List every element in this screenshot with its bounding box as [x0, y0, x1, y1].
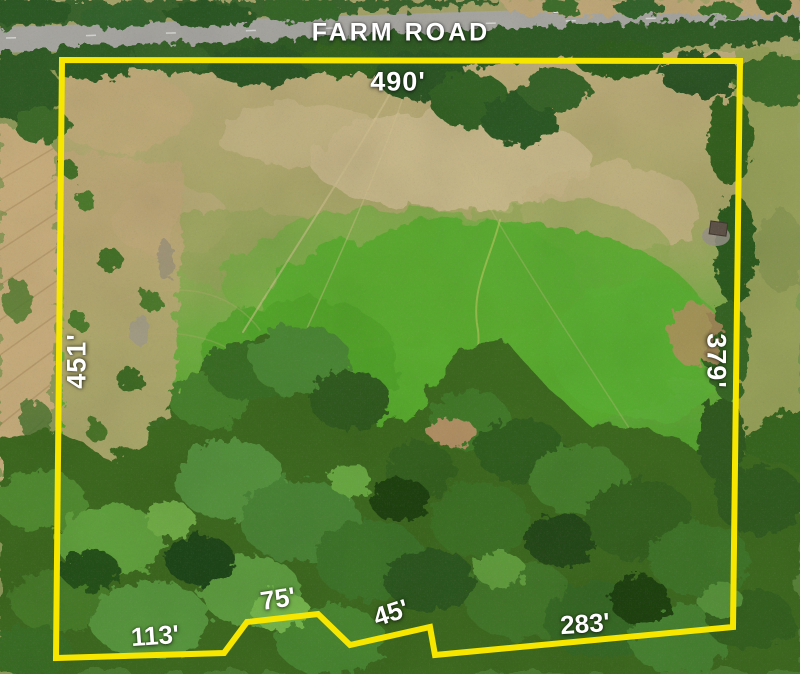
road-name-label: FARM ROAD — [312, 19, 490, 48]
property-aerial-view: FARM ROAD 490' 451' 379' 113' 75' 45' 28… — [0, 0, 800, 674]
dimension-label-south-west: 113' — [130, 619, 180, 653]
dimension-label-east: 379' — [701, 333, 732, 388]
dimension-label-north: 490' — [370, 67, 425, 98]
dimension-label-south-step-1: 75' — [258, 581, 298, 617]
aerial-photo — [0, 0, 800, 674]
dimension-label-south-east: 283' — [559, 607, 611, 641]
dimension-label-west: 451' — [62, 333, 93, 388]
